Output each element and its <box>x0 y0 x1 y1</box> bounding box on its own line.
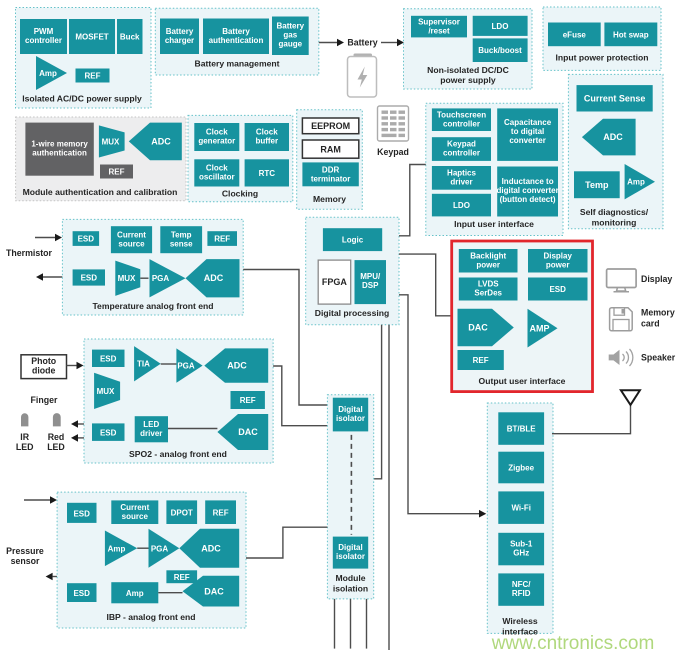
svg-text:Digital: Digital <box>338 405 362 414</box>
svg-text:SPO2 - analog front end: SPO2 - analog front end <box>129 449 227 459</box>
svg-text:controller: controller <box>25 36 62 45</box>
svg-text:ESD: ESD <box>549 285 566 294</box>
svg-text:ADC: ADC <box>151 137 171 147</box>
svg-text:Haptics: Haptics <box>447 169 476 178</box>
svg-text:power: power <box>476 261 500 270</box>
svg-text:Supervisor: Supervisor <box>418 18 460 27</box>
svg-text:PGA: PGA <box>151 545 169 554</box>
svg-text:ESD: ESD <box>73 510 90 519</box>
svg-text:Digital processing: Digital processing <box>315 308 390 318</box>
svg-text:Keypad: Keypad <box>447 140 476 149</box>
svg-text:ADC: ADC <box>201 544 221 554</box>
svg-text:Speaker: Speaker <box>641 353 676 363</box>
svg-text:Temperature analog front end: Temperature analog front end <box>92 301 213 311</box>
svg-text:DAC: DAC <box>238 427 258 437</box>
svg-text:BT/BLE: BT/BLE <box>507 425 537 434</box>
svg-text:LED: LED <box>143 420 159 429</box>
svg-text:Output user interface: Output user interface <box>479 376 566 386</box>
svg-text:Current: Current <box>117 231 146 240</box>
svg-text:isolation: isolation <box>333 584 368 594</box>
svg-text:LVDS: LVDS <box>478 280 499 289</box>
svg-text:Input power protection: Input power protection <box>555 53 648 63</box>
svg-text:Temp: Temp <box>585 180 609 190</box>
svg-text:Current Sense: Current Sense <box>584 94 646 104</box>
svg-text:controller: controller <box>443 120 480 129</box>
svg-text:controller: controller <box>443 149 480 158</box>
svg-text:DAC: DAC <box>468 323 488 333</box>
svg-text:Wireless: Wireless <box>502 616 537 626</box>
svg-text:power: power <box>546 261 570 270</box>
svg-text:MUX: MUX <box>97 387 115 396</box>
svg-text:REF: REF <box>214 235 230 244</box>
svg-text:authentication: authentication <box>32 149 87 158</box>
svg-text:MPU/: MPU/ <box>360 272 381 281</box>
svg-text:/reset: /reset <box>428 27 450 36</box>
svg-text:Clock: Clock <box>206 164 228 173</box>
svg-text:Temp: Temp <box>171 231 192 240</box>
svg-text:LDO: LDO <box>453 201 470 210</box>
svg-text:GHz: GHz <box>513 549 529 558</box>
svg-text:Thermistor: Thermistor <box>6 248 53 258</box>
svg-text:www.cntronics.com: www.cntronics.com <box>491 633 655 654</box>
svg-text:Battery: Battery <box>347 38 377 48</box>
svg-text:Amp: Amp <box>126 589 144 598</box>
svg-text:EEPROM: EEPROM <box>311 121 350 131</box>
svg-text:LED: LED <box>47 442 65 452</box>
svg-text:REF: REF <box>85 72 101 81</box>
svg-text:Battery: Battery <box>222 27 250 36</box>
svg-text:Capacitance: Capacitance <box>504 118 552 127</box>
svg-text:Pressure: Pressure <box>6 546 44 556</box>
svg-text:card: card <box>641 319 660 329</box>
svg-text:Finger: Finger <box>31 395 58 405</box>
svg-text:Logic: Logic <box>342 236 364 245</box>
svg-text:Clock: Clock <box>256 128 278 137</box>
svg-text:Backlight: Backlight <box>470 252 506 261</box>
svg-text:driver: driver <box>450 178 472 187</box>
svg-text:(button detect): (button detect) <box>500 195 556 204</box>
svg-text:PWM: PWM <box>34 27 54 36</box>
svg-text:Input user interface: Input user interface <box>454 219 534 229</box>
svg-text:to digital: to digital <box>511 127 544 136</box>
svg-text:DAC: DAC <box>204 587 224 597</box>
svg-text:Amp: Amp <box>108 545 126 554</box>
svg-text:DSP: DSP <box>362 281 379 290</box>
svg-text:Isolated AC/DC power supply: Isolated AC/DC power supply <box>22 94 142 104</box>
svg-text:Inductance to: Inductance to <box>502 177 554 186</box>
svg-text:MOSFET: MOSFET <box>75 33 108 42</box>
svg-text:PGA: PGA <box>152 274 170 283</box>
svg-text:Hot swap: Hot swap <box>613 30 649 39</box>
svg-text:diode: diode <box>32 365 56 375</box>
svg-text:buffer: buffer <box>255 137 278 146</box>
svg-text:sense: sense <box>170 240 193 249</box>
svg-text:Keypad: Keypad <box>377 147 409 157</box>
svg-text:FPGA: FPGA <box>322 277 348 287</box>
svg-text:REF: REF <box>109 168 125 177</box>
svg-text:gauge: gauge <box>279 40 303 49</box>
svg-text:Red: Red <box>48 432 65 442</box>
svg-text:ESD: ESD <box>81 274 98 283</box>
svg-text:Buck/boost: Buck/boost <box>478 46 522 55</box>
svg-text:power supply: power supply <box>440 75 496 85</box>
svg-text:REF: REF <box>240 396 256 405</box>
svg-text:NFC/: NFC/ <box>512 580 531 589</box>
svg-text:IBP - analog front end: IBP - analog front end <box>106 612 195 622</box>
svg-text:converter: converter <box>509 136 545 145</box>
svg-text:ESD: ESD <box>100 355 117 364</box>
svg-text:ADC: ADC <box>227 361 247 371</box>
svg-text:Battery: Battery <box>277 22 305 31</box>
svg-text:terminator: terminator <box>311 175 351 184</box>
svg-text:Wi-Fi: Wi-Fi <box>511 504 530 513</box>
svg-text:driver: driver <box>140 429 162 438</box>
svg-text:Battery: Battery <box>166 27 194 36</box>
svg-text:DPOT: DPOT <box>171 509 193 518</box>
svg-text:Digital: Digital <box>338 543 362 552</box>
svg-text:ESD: ESD <box>78 235 95 244</box>
svg-text:generator: generator <box>198 137 235 146</box>
svg-text:1-wire memory: 1-wire memory <box>31 140 88 149</box>
svg-text:LDO: LDO <box>492 22 509 31</box>
svg-text:Module authentication and cali: Module authentication and calibration <box>23 187 178 197</box>
svg-text:REF: REF <box>174 573 190 582</box>
svg-text:authentication: authentication <box>209 36 264 45</box>
svg-text:oscillator: oscillator <box>199 173 235 182</box>
svg-text:digital converter: digital converter <box>496 186 558 195</box>
svg-text:Touchscreen: Touchscreen <box>437 111 486 120</box>
svg-text:sensor: sensor <box>11 556 40 566</box>
svg-text:ADC: ADC <box>603 132 623 142</box>
svg-text:Buck: Buck <box>120 33 140 42</box>
svg-text:LED: LED <box>16 442 34 452</box>
svg-text:Sub-1: Sub-1 <box>510 540 533 549</box>
svg-text:RTC: RTC <box>259 169 276 178</box>
svg-text:IR: IR <box>20 432 29 442</box>
svg-text:Display: Display <box>543 252 572 261</box>
svg-text:Battery management: Battery management <box>194 59 279 69</box>
svg-text:Module: Module <box>335 573 365 583</box>
svg-text:Amp: Amp <box>627 178 645 187</box>
svg-text:AMP: AMP <box>530 324 550 334</box>
svg-text:source: source <box>118 240 145 249</box>
svg-text:Zigbee: Zigbee <box>508 464 534 473</box>
svg-text:ESD: ESD <box>73 589 90 598</box>
svg-text:REF: REF <box>213 509 229 518</box>
svg-text:source: source <box>122 512 149 521</box>
svg-text:Memory: Memory <box>313 194 346 204</box>
svg-text:REF: REF <box>473 356 489 365</box>
svg-text:Photo: Photo <box>31 356 57 366</box>
svg-text:eFuse: eFuse <box>563 30 587 39</box>
svg-text:gas: gas <box>283 31 297 40</box>
svg-text:monitoring: monitoring <box>592 218 637 228</box>
svg-text:Memory: Memory <box>641 308 675 318</box>
svg-text:MUX: MUX <box>102 138 120 147</box>
svg-text:RFID: RFID <box>512 589 531 598</box>
svg-text:isolator: isolator <box>336 552 365 561</box>
svg-text:Clock: Clock <box>206 128 228 137</box>
svg-text:SerDes: SerDes <box>474 289 502 298</box>
svg-text:TIA: TIA <box>137 360 150 369</box>
svg-text:ADC: ADC <box>204 273 224 283</box>
svg-text:ESD: ESD <box>100 429 117 438</box>
svg-text:charger: charger <box>165 36 194 45</box>
svg-text:Clocking: Clocking <box>222 189 258 199</box>
svg-text:PGA: PGA <box>177 362 195 371</box>
svg-text:MUX: MUX <box>118 274 136 283</box>
svg-text:Self diagnostics/: Self diagnostics/ <box>580 207 649 217</box>
svg-text:RAM: RAM <box>320 145 341 155</box>
svg-text:Non-isolated DC/DC: Non-isolated DC/DC <box>427 65 509 75</box>
svg-text:Current: Current <box>120 503 149 512</box>
svg-text:isolator: isolator <box>336 414 365 423</box>
svg-text:DDR: DDR <box>322 166 340 175</box>
svg-text:Amp: Amp <box>39 69 57 78</box>
svg-text:Display: Display <box>641 274 672 284</box>
